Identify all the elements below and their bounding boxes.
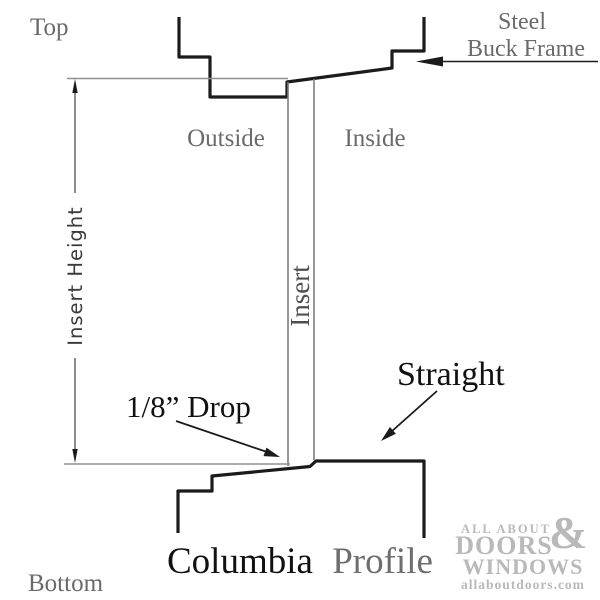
dimension-arrow-up-icon — [72, 79, 77, 93]
profile-title-name: Columbia — [167, 541, 313, 582]
straight-label: Straight — [397, 356, 505, 393]
steel-buck-frame-label-line2: Buck Frame — [467, 36, 585, 62]
top-label: Top — [30, 14, 69, 41]
logo-website-text: allaboutdoors.com — [455, 577, 591, 593]
logo-ampersand-icon: & — [549, 510, 587, 556]
drop-arrowhead-icon — [264, 448, 281, 457]
dimension-arrow-down-icon — [72, 449, 77, 463]
bottom-frame-profile-line — [178, 461, 424, 538]
buck-frame-arrowhead-icon — [416, 57, 443, 67]
insert-height-label: Insert Height — [64, 206, 87, 346]
profile-title: Columbia Profile — [167, 541, 433, 582]
drop-arrow-line — [176, 421, 267, 452]
outside-label: Outside — [187, 125, 265, 152]
profile-title-word: Profile — [332, 541, 433, 582]
drop-label: 1/8” Drop — [126, 389, 251, 424]
profile-diagram: Top Steel Buck Frame Outside Inside Inse… — [0, 0, 600, 600]
company-logo: ALL ABOUT & DOORS WINDOWS allaboutdoors.… — [455, 516, 591, 596]
top-frame-profile-line — [179, 17, 424, 97]
diagram-canvas: Top Steel Buck Frame Outside Inside Inse… — [0, 0, 600, 600]
steel-buck-frame-label-line1: Steel — [498, 9, 546, 35]
insert-label: Insert — [285, 265, 315, 327]
straight-arrow-line — [391, 391, 437, 432]
bottom-label: Bottom — [28, 570, 104, 597]
inside-label: Inside — [344, 125, 405, 152]
